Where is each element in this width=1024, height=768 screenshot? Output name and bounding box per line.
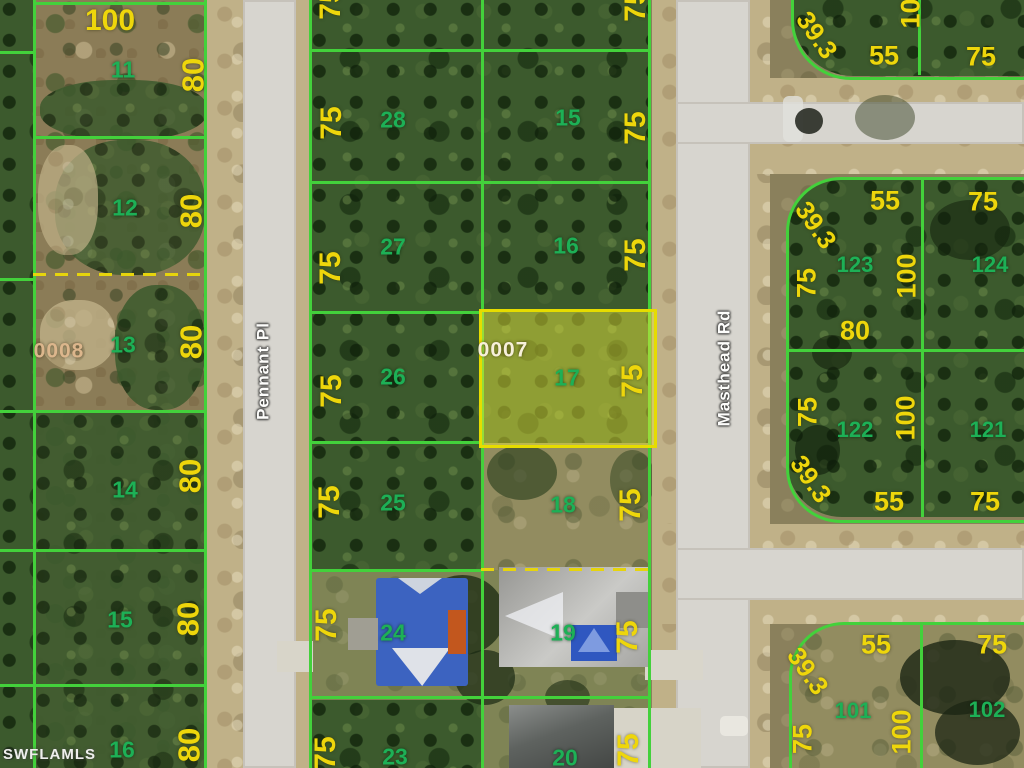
dimension-label: 75 xyxy=(317,106,347,139)
lot-number-label: 16 xyxy=(109,739,135,762)
dimension-label: 75 xyxy=(317,374,347,407)
dimension-label: 39.3 xyxy=(783,643,833,699)
lot-number-label: 15 xyxy=(555,107,581,130)
dimension-label: 75 xyxy=(621,0,651,22)
lot-number-label: 121 xyxy=(970,419,1007,441)
dimension-label: 80 xyxy=(176,194,207,228)
dimension-label: 55 xyxy=(861,632,891,659)
labels-layer: 1112131415162827262524231516171819201231… xyxy=(0,0,1024,768)
dimension-label: 75 xyxy=(613,620,643,653)
dimension-label: 75 xyxy=(977,632,1007,659)
lot-number-label: 18 xyxy=(550,494,576,517)
lot-number-label: 11 xyxy=(111,59,135,82)
dimension-label: 75 xyxy=(621,111,651,144)
dimension-label: 80 xyxy=(174,728,205,762)
lot-number-label: 122 xyxy=(837,419,874,441)
lot-number-label: 15 xyxy=(107,609,133,632)
dimension-label: 80 xyxy=(176,325,207,359)
lot-number-label: 12 xyxy=(112,197,138,220)
dimension-label: 75 xyxy=(794,268,821,298)
dimension-label: 100 xyxy=(893,395,920,440)
dimension-label: 100 xyxy=(85,6,135,36)
dimension-label: 75 xyxy=(968,189,998,216)
dimension-label: 55 xyxy=(870,188,900,215)
lot-number-label: 14 xyxy=(112,479,138,502)
dimension-label: 75 xyxy=(316,251,346,284)
dimension-label: 39.3 xyxy=(791,197,841,253)
lot-number-label: 13 xyxy=(110,334,136,357)
lot-number-label: 123 xyxy=(837,254,874,276)
lot-number-label: 24 xyxy=(380,622,406,645)
dimension-label: 75 xyxy=(315,485,345,518)
dimension-label: 100 xyxy=(898,0,925,29)
lot-number-label: 20 xyxy=(552,747,578,768)
dimension-label: 75 xyxy=(966,44,996,71)
dimension-label: 75 xyxy=(970,489,1000,516)
dimension-label: 80 xyxy=(178,58,209,92)
lot-number-label: 26 xyxy=(380,366,406,389)
dimension-label: 39.3 xyxy=(792,7,842,63)
dimension-label: 75 xyxy=(311,736,341,768)
dimension-label: 55 xyxy=(874,489,904,516)
dimension-label: 75 xyxy=(316,0,346,20)
lot-number-label: 23 xyxy=(382,746,408,768)
lot-number-label: 17 xyxy=(554,367,580,390)
aerial-parcel-map: 1112131415162827262524231516171819201231… xyxy=(0,0,1024,768)
street-name-label: Masthead Rd xyxy=(716,310,733,427)
dimension-label: 75 xyxy=(614,733,644,766)
dimension-label: 80 xyxy=(175,459,206,493)
lot-number-label: 27 xyxy=(380,236,406,259)
dimension-label: 55 xyxy=(869,43,899,70)
lot-number-label: 124 xyxy=(972,254,1009,276)
lot-number-label: 28 xyxy=(380,109,406,132)
lot-number-label: 25 xyxy=(380,492,406,515)
dimension-label: 75 xyxy=(618,364,648,397)
dimension-label: 80 xyxy=(840,318,870,345)
dimension-label: 75 xyxy=(621,238,651,271)
watermark: SWFLAMLS xyxy=(3,746,96,763)
dimension-label: 75 xyxy=(790,724,817,754)
dimension-label: 80 xyxy=(173,602,204,636)
dimension-label: 75 xyxy=(616,488,646,521)
dimension-label: 100 xyxy=(894,253,921,298)
lot-number-label: 101 xyxy=(835,700,872,722)
street-name-label: Pennant Pl xyxy=(255,322,272,420)
dimension-label: 100 xyxy=(889,709,916,754)
lot-number-label: 16 xyxy=(553,235,579,258)
lot-number-label: 102 xyxy=(969,699,1006,721)
parcel-id-label: 0007 xyxy=(478,340,529,361)
parcel-id-label: 0008 xyxy=(34,341,85,362)
dimension-label: 39.3 xyxy=(786,451,836,507)
dimension-label: 75 xyxy=(312,608,342,641)
dimension-label: 75 xyxy=(795,397,822,427)
lot-number-label: 19 xyxy=(550,622,576,645)
